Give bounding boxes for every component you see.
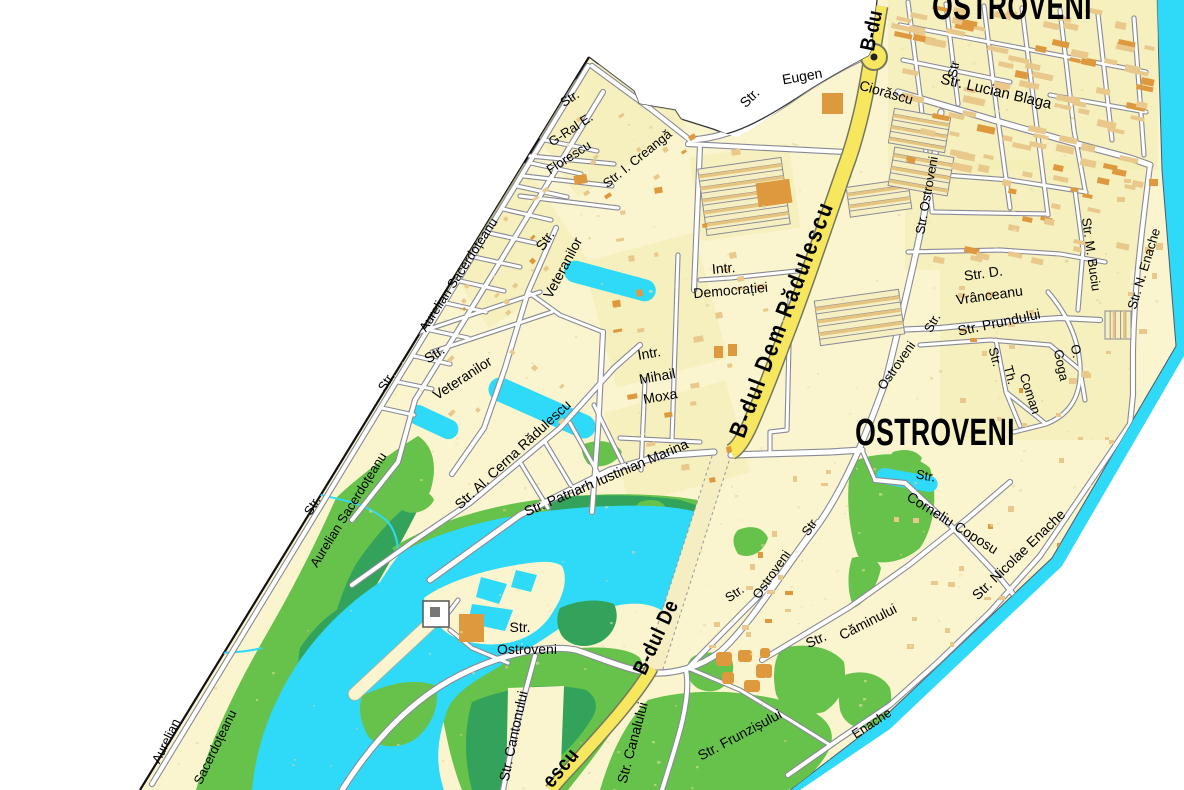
svg-text:OSTROVENI: OSTROVENI — [855, 410, 1015, 453]
svg-text:Str.: Str. — [509, 619, 530, 635]
svg-text:Intr.: Intr. — [711, 259, 736, 277]
svg-text:Ostroveni: Ostroveni — [497, 641, 557, 657]
svg-text:OSTROVENI: OSTROVENI — [932, 0, 1092, 27]
svg-text:O.: O. — [1068, 343, 1085, 359]
